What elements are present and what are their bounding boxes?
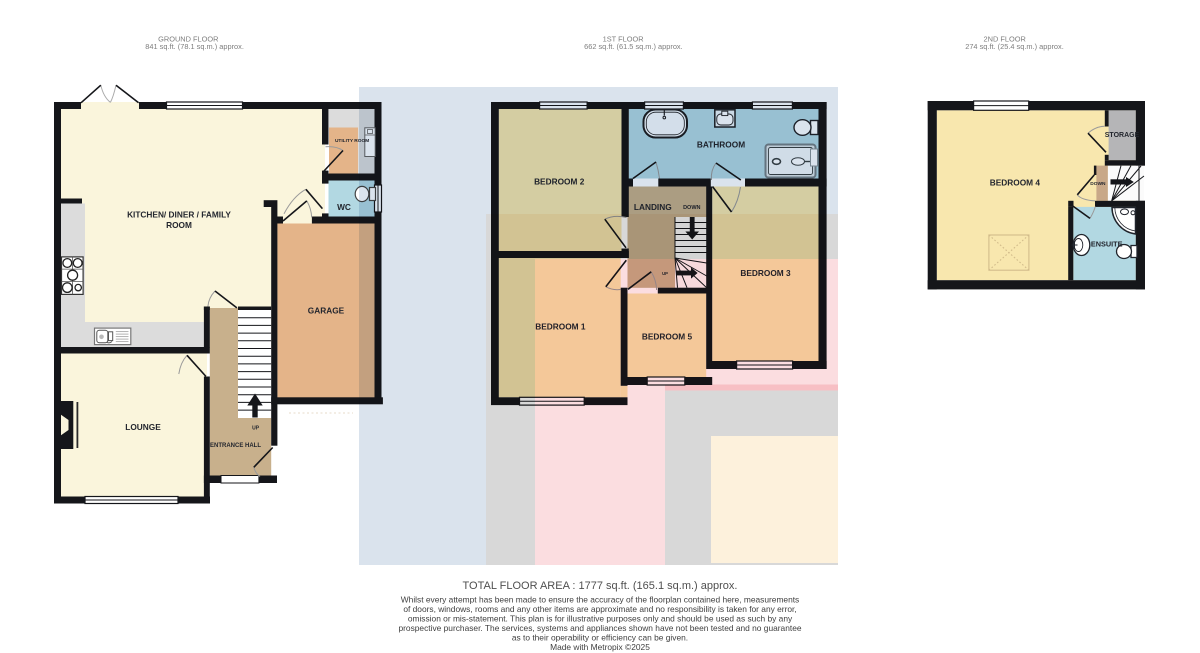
svg-text:UP: UP bbox=[252, 425, 260, 431]
svg-text:ENTRANCE HALL: ENTRANCE HALL bbox=[210, 443, 261, 449]
svg-text:omission or mis-statement. Thi: omission or mis-statement. This plan is … bbox=[408, 614, 793, 624]
svg-text:DOWN: DOWN bbox=[1090, 181, 1106, 187]
svg-text:GARAGE: GARAGE bbox=[308, 306, 345, 316]
svg-text:of doors, windows, rooms and a: of doors, windows, rooms and any other i… bbox=[403, 604, 796, 614]
svg-text:Made with Metropix ©2025: Made with Metropix ©2025 bbox=[550, 642, 650, 652]
svg-text:ENSUITE: ENSUITE bbox=[1091, 240, 1123, 249]
svg-text:ROOM: ROOM bbox=[166, 220, 192, 230]
svg-text:STORAGE: STORAGE bbox=[1105, 132, 1140, 139]
svg-text:BEDROOM 4: BEDROOM 4 bbox=[990, 177, 1041, 187]
svg-text:TOTAL FLOOR AREA : 1777 sq.ft.: TOTAL FLOOR AREA : 1777 sq.ft. (165.1 sq… bbox=[463, 580, 738, 592]
svg-text:662 sq.ft. (61.5 sq.m.) approx: 662 sq.ft. (61.5 sq.m.) approx. bbox=[584, 42, 683, 51]
svg-text:prospective purchaser. The ser: prospective purchaser. The services, sys… bbox=[398, 623, 801, 633]
svg-text:LOUNGE: LOUNGE bbox=[125, 422, 161, 432]
svg-text:Whilst every attempt has been: Whilst every attempt has been made to en… bbox=[401, 595, 800, 605]
svg-text:as to their operability or eff: as to their operability or efficiency ca… bbox=[512, 633, 688, 643]
svg-text:KITCHEN/ DINER / FAMILY: KITCHEN/ DINER / FAMILY bbox=[127, 210, 231, 220]
svg-text:274 sq.ft. (25.4 sq.m.) approx: 274 sq.ft. (25.4 sq.m.) approx. bbox=[965, 42, 1064, 51]
svg-text:WC: WC bbox=[337, 202, 351, 212]
svg-text:841 sq.ft. (78.1 sq.m.) approx: 841 sq.ft. (78.1 sq.m.) approx. bbox=[145, 42, 244, 51]
